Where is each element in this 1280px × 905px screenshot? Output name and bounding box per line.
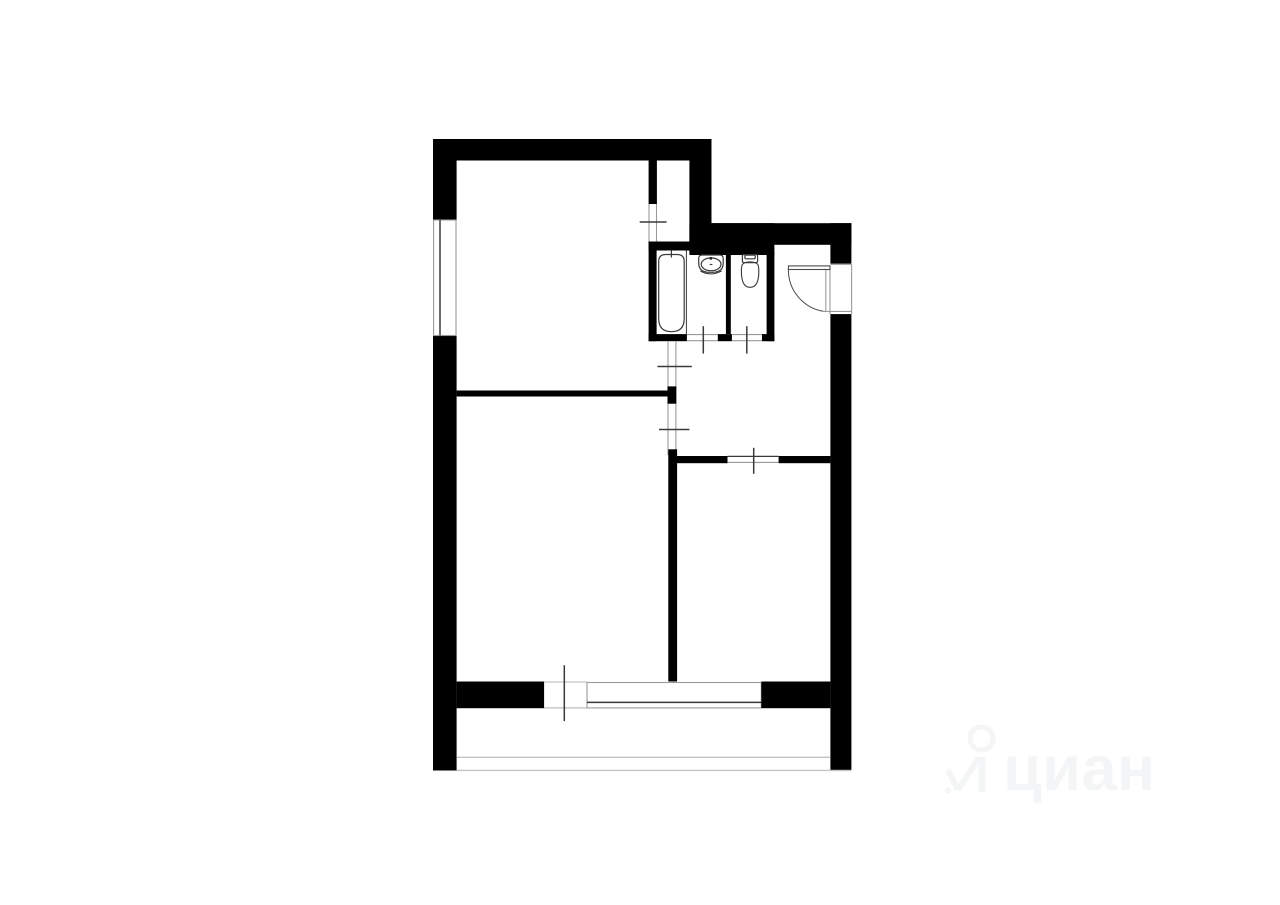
svg-text:циан: циан <box>1003 734 1156 804</box>
